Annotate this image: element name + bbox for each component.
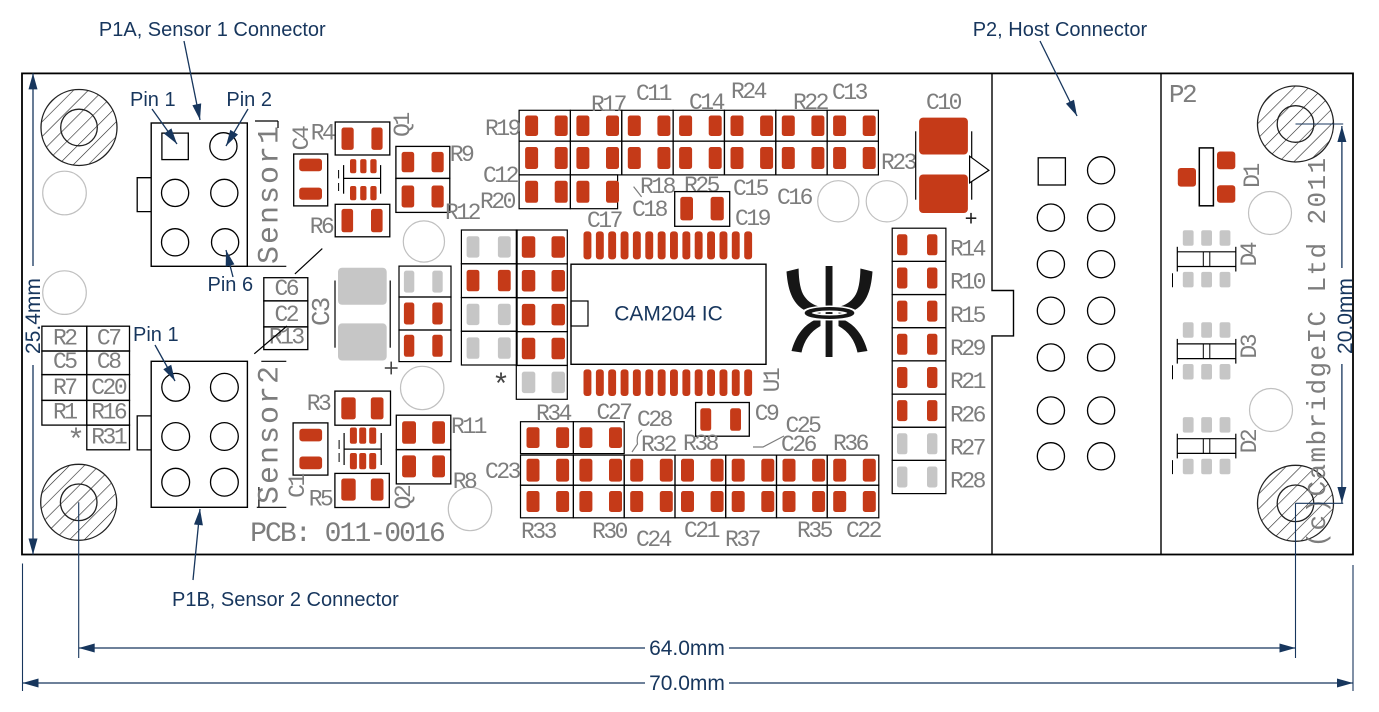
svg-text:C3: C3 [307, 298, 337, 326]
svg-text:R36: R36 [833, 431, 869, 457]
svg-text:C23: C23 [485, 459, 521, 485]
svg-text:R22: R22 [793, 90, 829, 116]
svg-text:R38: R38 [683, 431, 719, 457]
svg-text:D4: D4 [1237, 242, 1263, 266]
svg-text:R32: R32 [641, 432, 677, 458]
svg-text:C27: C27 [597, 400, 632, 426]
svg-text:R2: R2 [53, 326, 77, 352]
svg-text:R27: R27 [950, 436, 985, 462]
svg-text:20.0mm: 20.0mm [1334, 278, 1357, 354]
svg-text:C14: C14 [689, 90, 725, 116]
svg-text:C1: C1 [285, 474, 311, 498]
svg-text:Pin 2: Pin 2 [226, 89, 272, 111]
svg-text:R25: R25 [684, 173, 720, 199]
svg-text:R33: R33 [521, 519, 557, 545]
svg-text:C7: C7 [97, 326, 120, 352]
svg-text:R3: R3 [307, 391, 331, 417]
svg-text:PCB: 011-0016: PCB: 011-0016 [250, 519, 444, 550]
svg-text:Pin 6: Pin 6 [208, 274, 254, 296]
svg-text:R17: R17 [591, 92, 626, 118]
svg-text:C22: C22 [846, 518, 882, 544]
svg-text:R21: R21 [950, 369, 986, 395]
svg-text:Pin 1: Pin 1 [130, 89, 176, 111]
svg-text:70.0mm: 70.0mm [649, 672, 725, 695]
svg-text:R31: R31 [91, 424, 127, 450]
svg-text:C9: C9 [755, 401, 779, 427]
svg-text:P1B, Sensor 2 Connector: P1B, Sensor 2 Connector [172, 589, 399, 611]
svg-text:C12: C12 [483, 163, 519, 189]
svg-text:C6: C6 [274, 276, 298, 302]
svg-text:(c)CambridgeIC Ltd 2011: (c)CambridgeIC Ltd 2011 [1303, 156, 1333, 547]
svg-text:R37: R37 [725, 527, 760, 553]
svg-text:R15: R15 [950, 303, 986, 329]
svg-text:R19: R19 [485, 116, 521, 142]
svg-text:Q2: Q2 [391, 485, 417, 509]
svg-text:C26: C26 [781, 432, 817, 458]
svg-text:C20: C20 [91, 375, 127, 401]
svg-text:P1A, Sensor 1 Connector: P1A, Sensor 1 Connector [99, 19, 326, 41]
svg-text:C10: C10 [926, 90, 962, 116]
svg-text:Sensor2: Sensor2 [254, 364, 288, 504]
svg-text:U1: U1 [760, 368, 786, 392]
svg-text:R8: R8 [453, 469, 477, 495]
svg-text:C19: C19 [735, 206, 771, 232]
svg-text:C17: C17 [587, 208, 622, 234]
svg-text:R24: R24 [731, 79, 767, 105]
svg-text:D2: D2 [1237, 429, 1263, 453]
svg-text:R14: R14 [950, 237, 986, 263]
svg-text:C28: C28 [637, 407, 673, 433]
svg-text:P2: P2 [1169, 80, 1196, 110]
svg-text:R28: R28 [950, 469, 986, 495]
svg-text:R11: R11 [451, 414, 487, 440]
svg-text:C24: C24 [636, 527, 672, 553]
svg-text:R20: R20 [480, 189, 516, 215]
svg-text:R16: R16 [91, 400, 127, 426]
svg-text:R30: R30 [592, 519, 628, 545]
svg-text:C13: C13 [832, 80, 868, 106]
svg-text:*: * [492, 370, 510, 404]
svg-text:R29: R29 [950, 336, 986, 362]
svg-text:C21: C21 [684, 518, 720, 544]
svg-text:R12: R12 [445, 200, 481, 226]
svg-text:64.0mm: 64.0mm [649, 637, 725, 660]
svg-text:Q1: Q1 [390, 113, 416, 137]
svg-text:C11: C11 [636, 81, 672, 107]
svg-text:C15: C15 [733, 176, 769, 202]
svg-text:R6: R6 [310, 214, 334, 240]
svg-text:P2, Host Connector: P2, Host Connector [973, 19, 1148, 41]
svg-text:*: * [67, 425, 85, 459]
svg-text:C18: C18 [632, 197, 668, 223]
svg-text:R23: R23 [881, 150, 917, 176]
svg-text:R26: R26 [950, 402, 986, 428]
svg-text:D1: D1 [1240, 164, 1266, 188]
svg-text:C8: C8 [97, 349, 121, 375]
svg-text:C16: C16 [777, 185, 813, 211]
svg-text:R1: R1 [53, 400, 77, 426]
svg-text:CAM204 IC: CAM204 IC [614, 303, 723, 326]
svg-text:R10: R10 [950, 270, 986, 296]
svg-text:C5: C5 [53, 349, 77, 375]
svg-text:25.4mm: 25.4mm [22, 278, 45, 354]
svg-text:Sensor1: Sensor1 [254, 124, 288, 264]
svg-text:D3: D3 [1237, 334, 1263, 358]
svg-text:R35: R35 [797, 518, 833, 544]
svg-text:R34: R34 [536, 401, 572, 427]
svg-text:R7: R7 [53, 375, 76, 401]
svg-text:R5: R5 [309, 487, 333, 513]
svg-text:R9: R9 [450, 142, 474, 168]
svg-text:Pin 1: Pin 1 [133, 324, 179, 346]
svg-text:R4: R4 [311, 121, 335, 147]
